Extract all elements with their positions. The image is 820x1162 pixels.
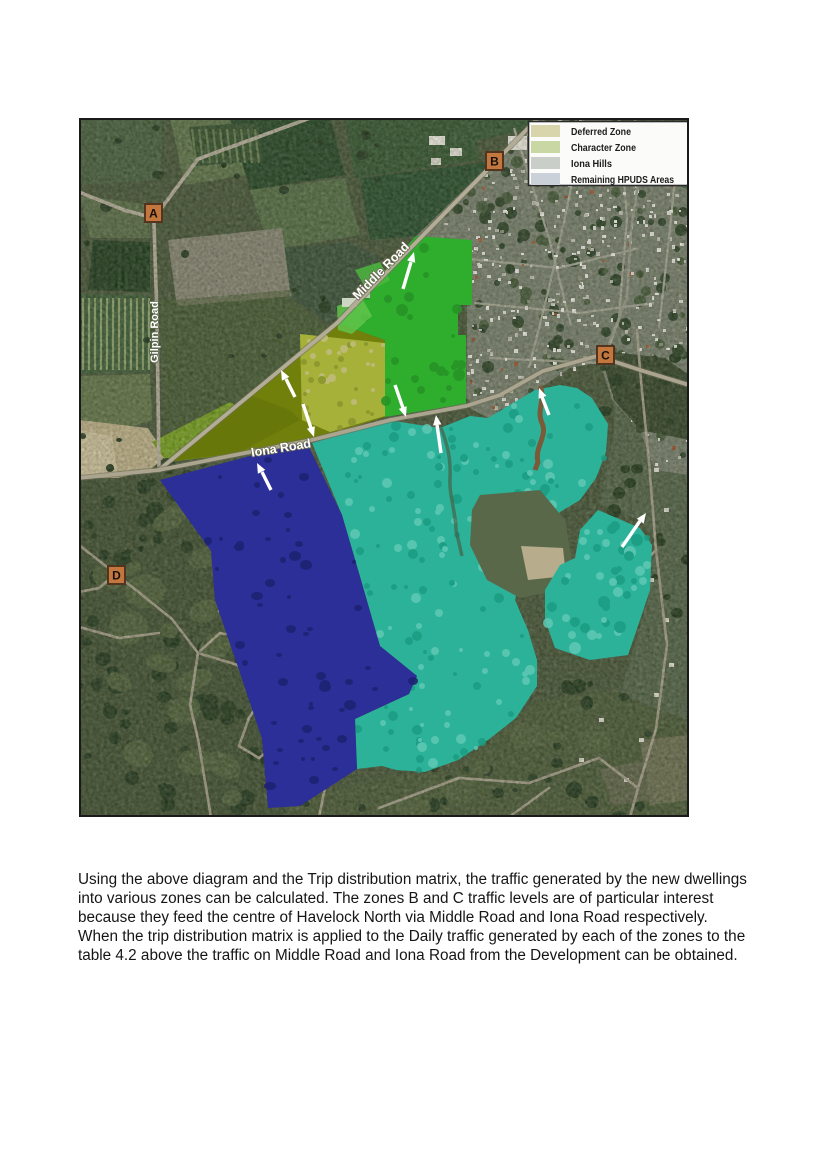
svg-text:Remaining HPUDS Areas: Remaining HPUDS Areas — [571, 175, 674, 186]
svg-text:D: D — [112, 569, 121, 583]
svg-text:Iona Hills: Iona Hills — [571, 159, 612, 170]
svg-text:C: C — [601, 349, 610, 363]
svg-text:Deferred Zone: Deferred Zone — [571, 127, 631, 138]
svg-text:Character Zone: Character Zone — [571, 143, 636, 154]
svg-text:B: B — [490, 155, 499, 169]
svg-text:Gilpin Road: Gilpin Road — [149, 301, 161, 363]
svg-text:A: A — [149, 207, 158, 221]
